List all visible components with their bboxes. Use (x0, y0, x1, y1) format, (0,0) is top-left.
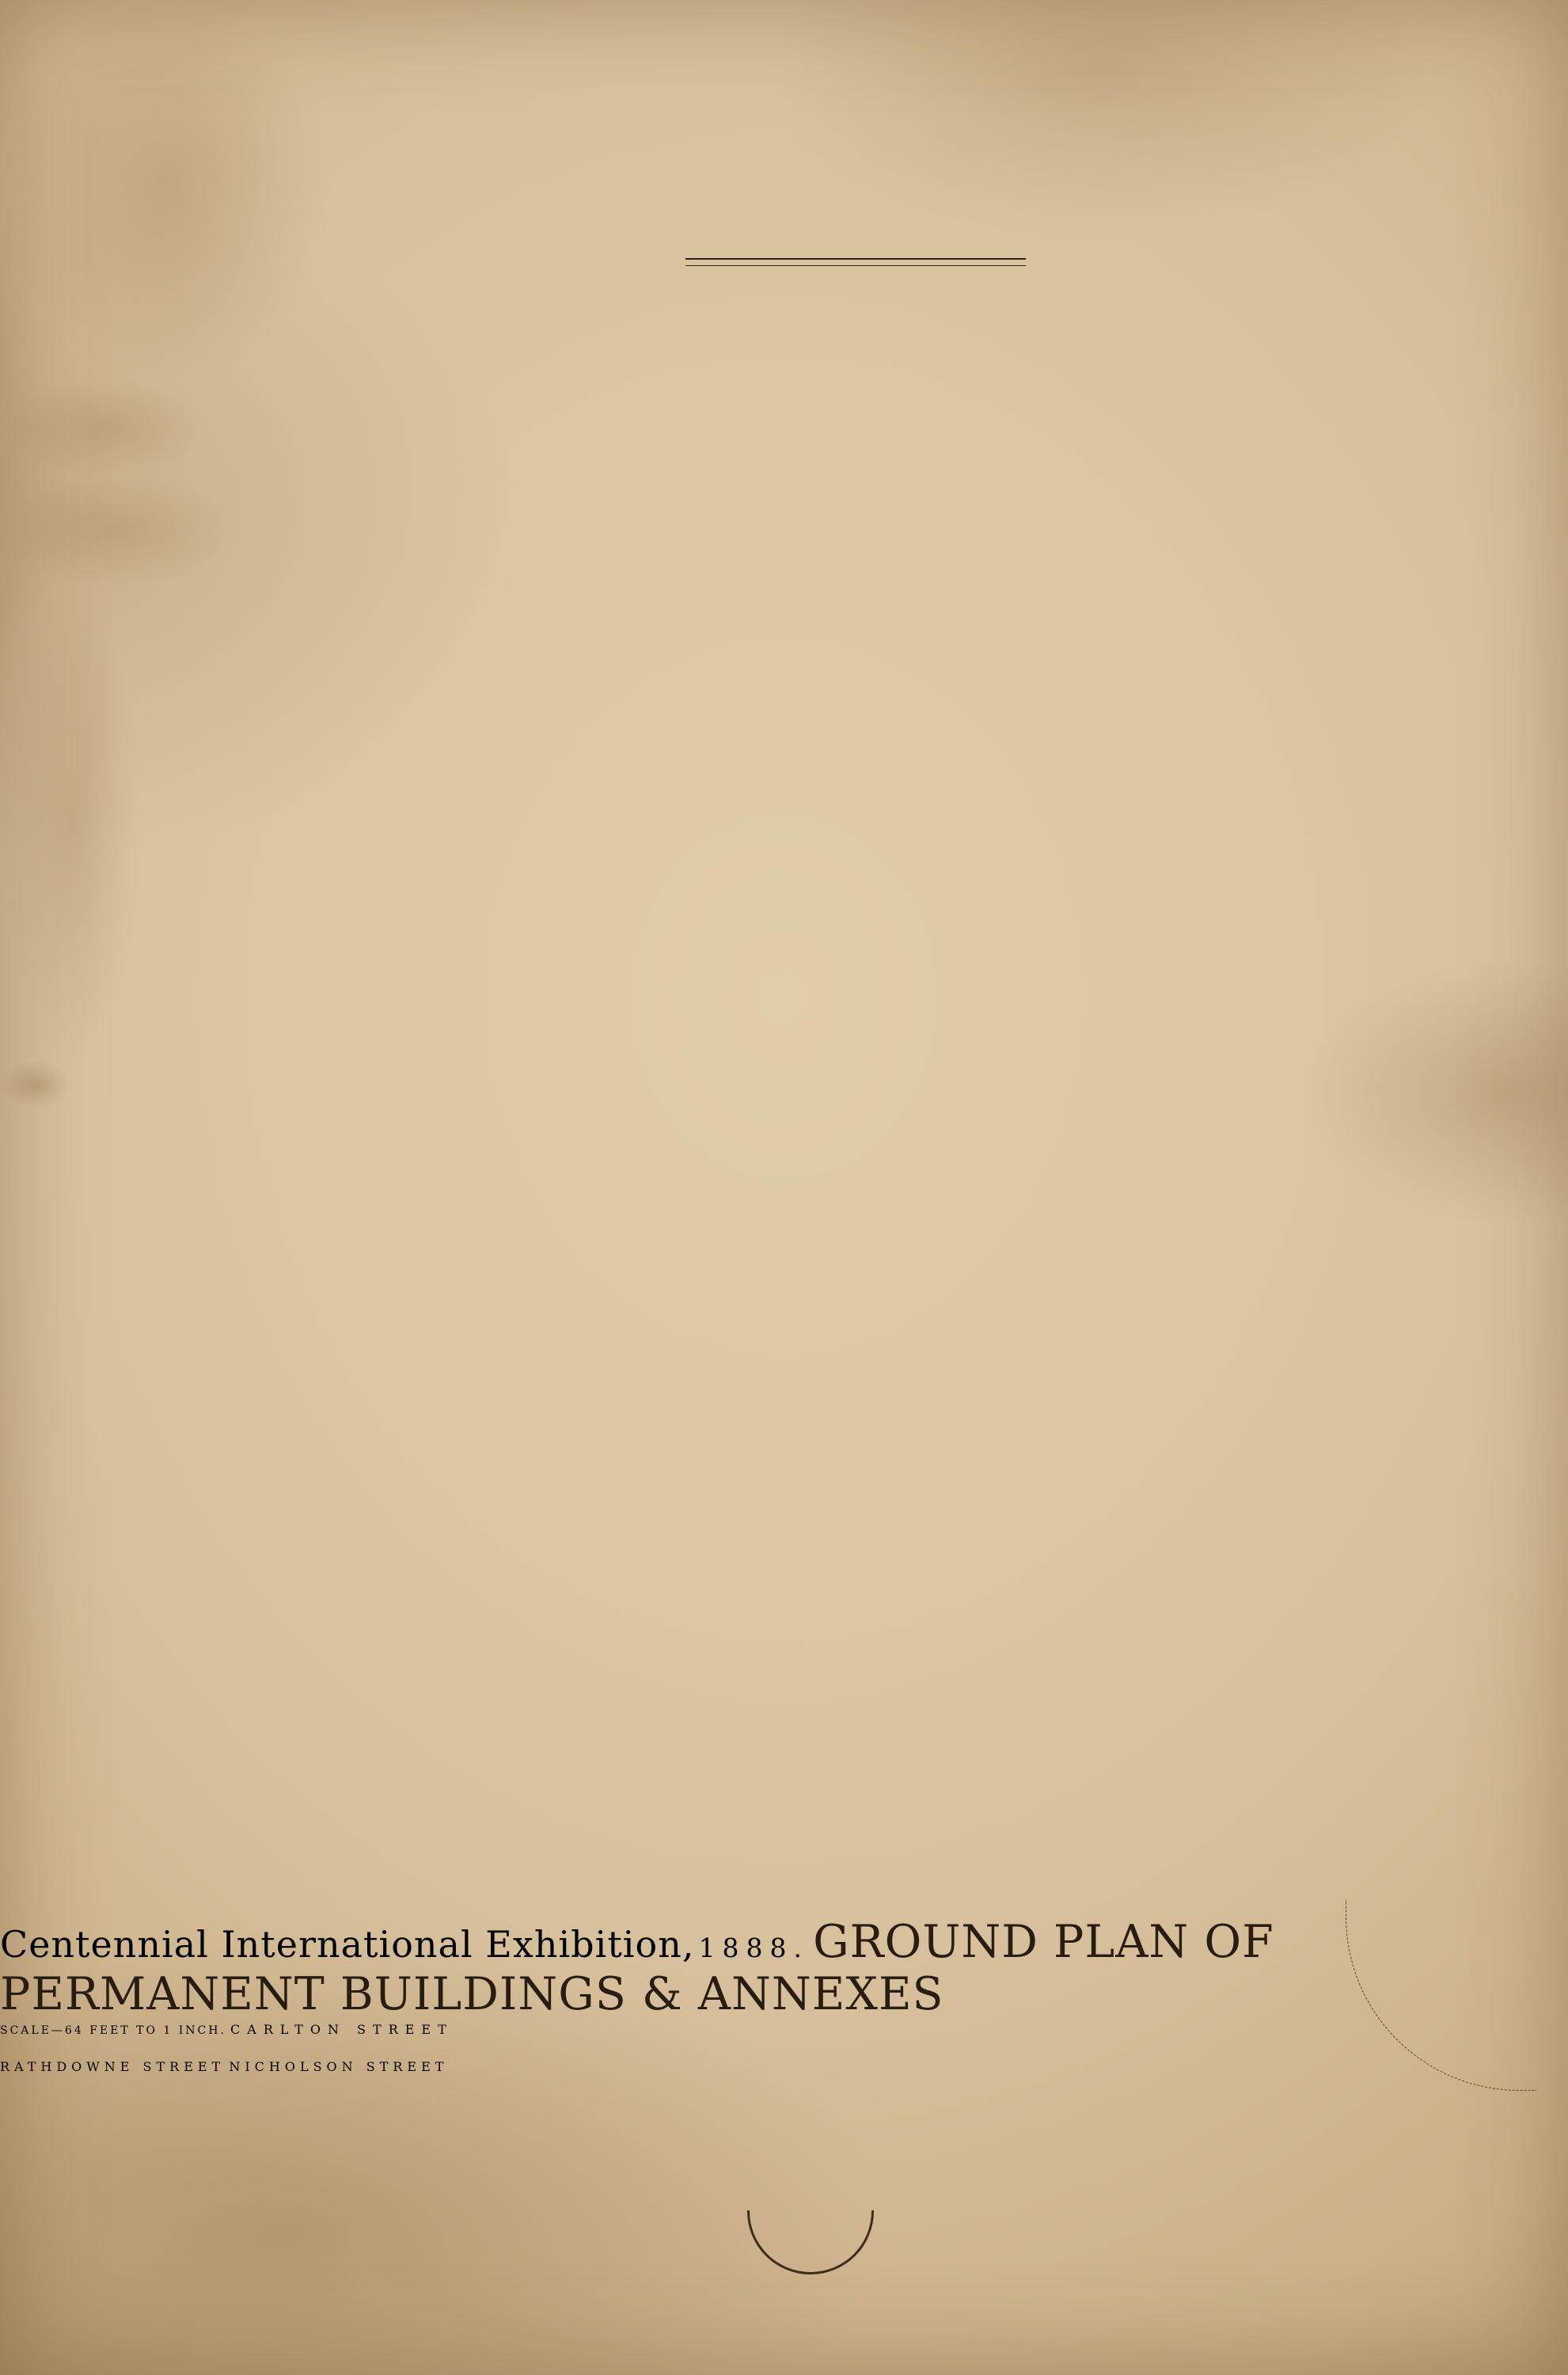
stain (0, 1061, 71, 1108)
street-line-hook (0, 2048, 1568, 2059)
stain (0, 475, 237, 586)
street-rathdowne: RATHDOWNE STREET (0, 2059, 225, 2074)
street-carlton: CARLTON STREET (230, 2022, 454, 2037)
scanned-map-photo: Centennial International Exhibition, 188… (0, 0, 1568, 2375)
scale-note: SCALE—64 FEET TO 1 INCH. (0, 2024, 226, 2037)
crease (0, 1711, 16, 1915)
stain (0, 0, 332, 380)
crease (0, 1108, 12, 1503)
title-rule (685, 258, 1026, 266)
page-year: 1888. (699, 1932, 809, 1963)
street-line-hook (0, 2037, 1568, 2048)
page-title: Centennial International Exhibition, (0, 1923, 694, 1966)
stain (0, 586, 142, 1061)
scale-bar (0, 2020, 101, 2022)
map-paper: Centennial International Exhibition, 188… (0, 0, 1568, 2375)
stain (0, 380, 206, 475)
south-entrance-arc (747, 2210, 874, 2274)
street-nicholson: NICHOLSON STREET (229, 2059, 448, 2074)
garden-path-curve (1346, 1900, 1536, 2091)
fence-west (0, 2074, 2, 2375)
crease (0, 1504, 9, 1709)
